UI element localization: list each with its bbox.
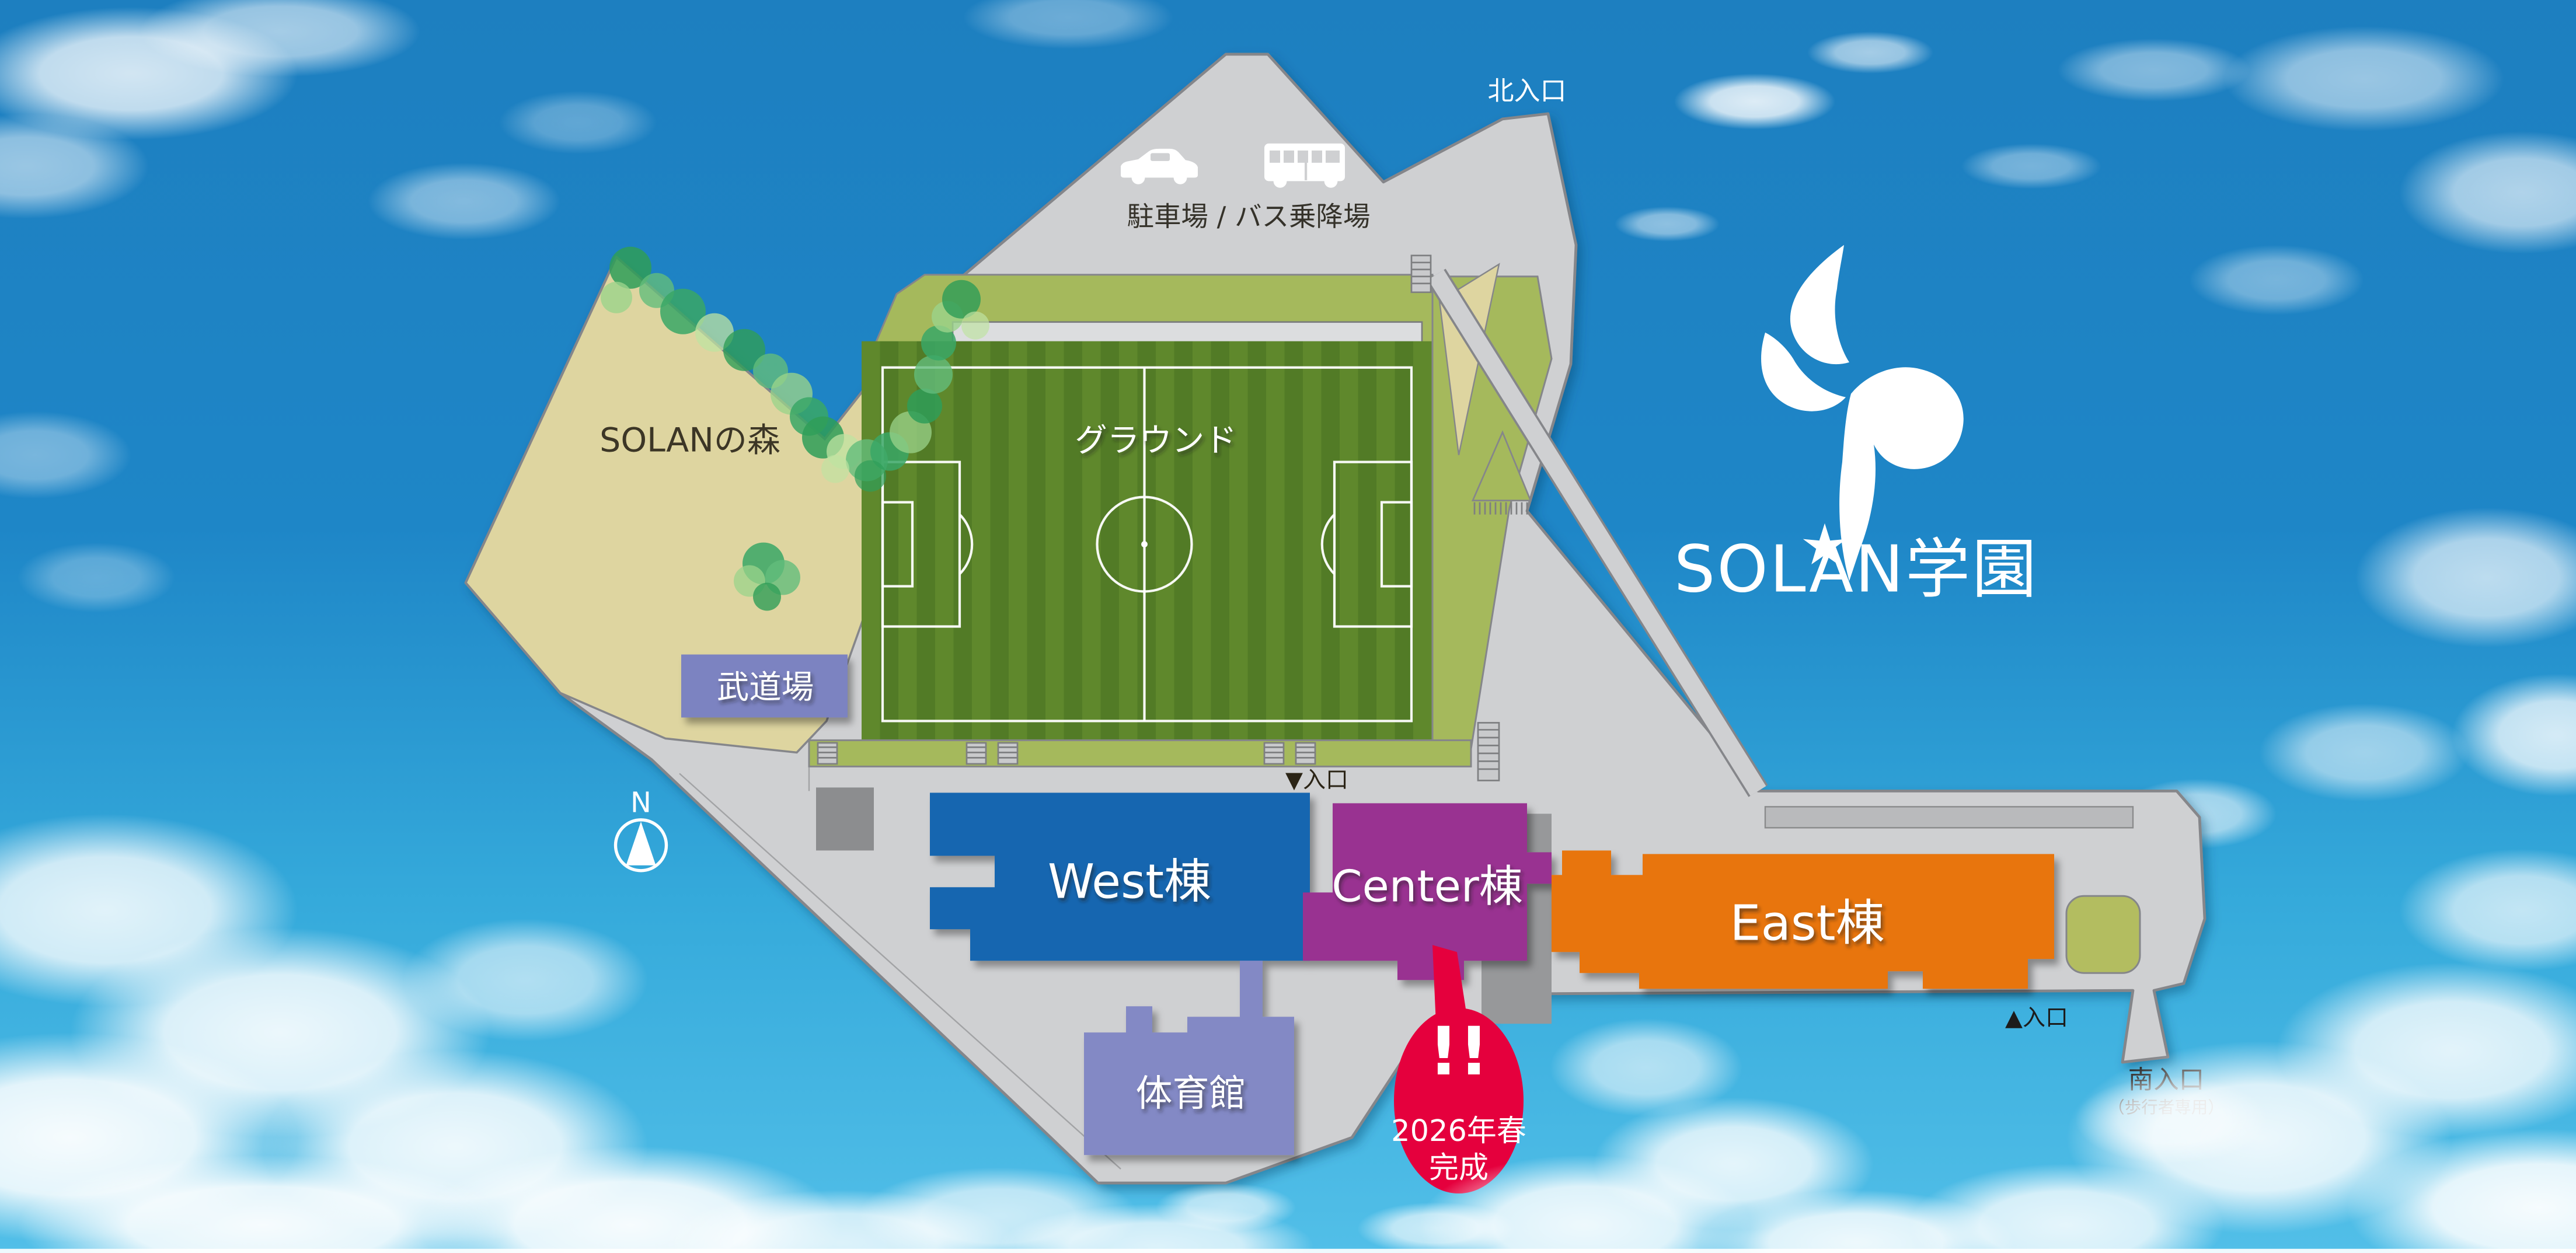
- gym-label: 体育館: [1136, 1072, 1246, 1115]
- ground-label: グラウンド: [1075, 423, 1236, 460]
- forest-label: SOLANの森: [599, 421, 780, 460]
- east-canopy: [1765, 807, 2133, 828]
- east-lawn-oval: [2066, 896, 2140, 973]
- campus-map: !! 2026年春 完成 N SOLAN学園 北入口 駐車場 / バス乗降場 S…: [0, 0, 2576, 1253]
- compass-n-label: N: [630, 786, 651, 819]
- east-gate-label: ▲入口: [2005, 1005, 2068, 1031]
- campus-map-page: !! 2026年春 完成 N SOLAN学園 北入口 駐車場 / バス乗降場 S…: [0, 0, 2576, 1253]
- ground-field: [862, 341, 1432, 741]
- announcement-line1: 2026年春: [1391, 1114, 1526, 1149]
- service-yard: [816, 787, 874, 850]
- parking-label: 駐車場 / バス乗降場: [1127, 201, 1370, 232]
- bus-lane: [953, 322, 1422, 342]
- north-entrance-label: 北入口: [1488, 75, 1567, 106]
- east-label: East棟: [1730, 894, 1884, 951]
- west-label: West棟: [1048, 854, 1211, 909]
- announcement-mark: !!: [1428, 1013, 1489, 1090]
- south-walkway: [809, 740, 1471, 766]
- bottom-edge-strip: [0, 1249, 2576, 1253]
- field-ne-stairs: [1411, 256, 1431, 292]
- school-name: SOLAN学園: [1674, 532, 2038, 608]
- budojo-label: 武道場: [717, 669, 814, 706]
- field-gate-label: ▼入口: [1285, 767, 1348, 793]
- center-label: Center棟: [1331, 860, 1522, 912]
